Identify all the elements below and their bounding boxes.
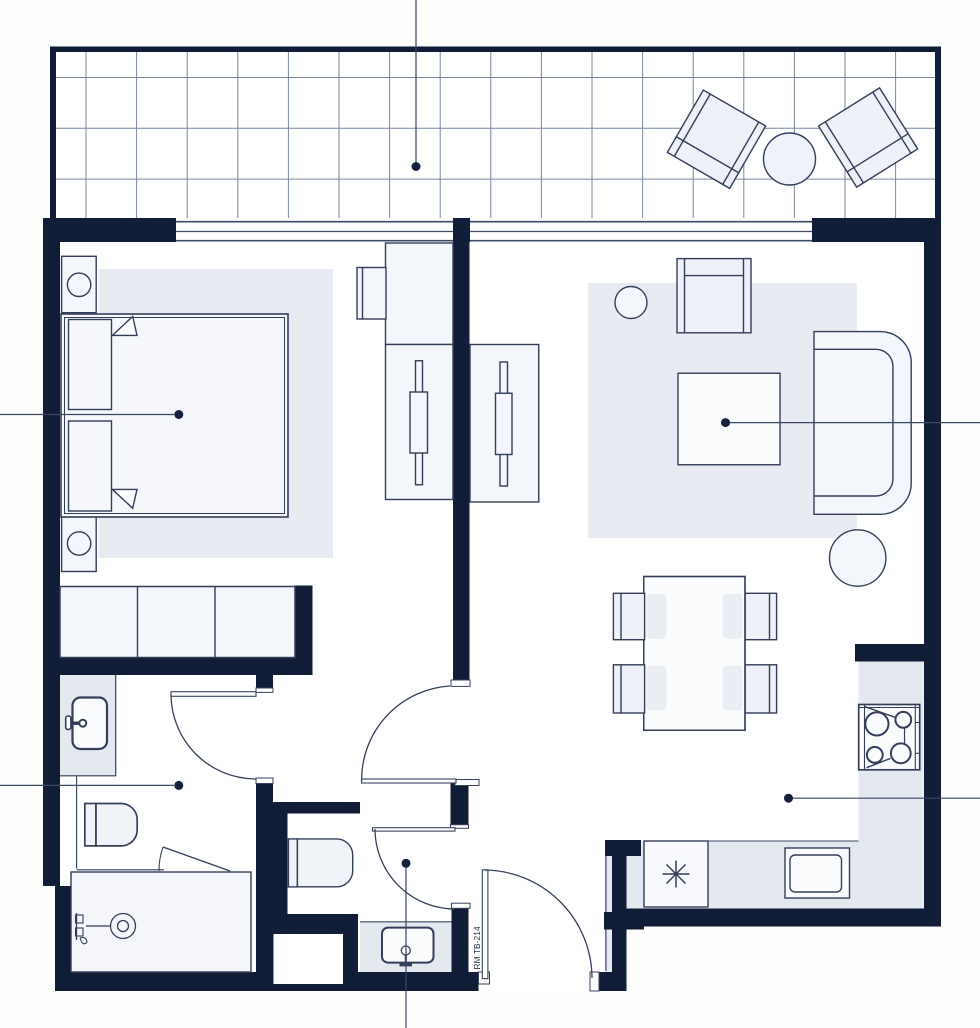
svg-text:RM TB-214: RM TB-214: [472, 926, 482, 969]
